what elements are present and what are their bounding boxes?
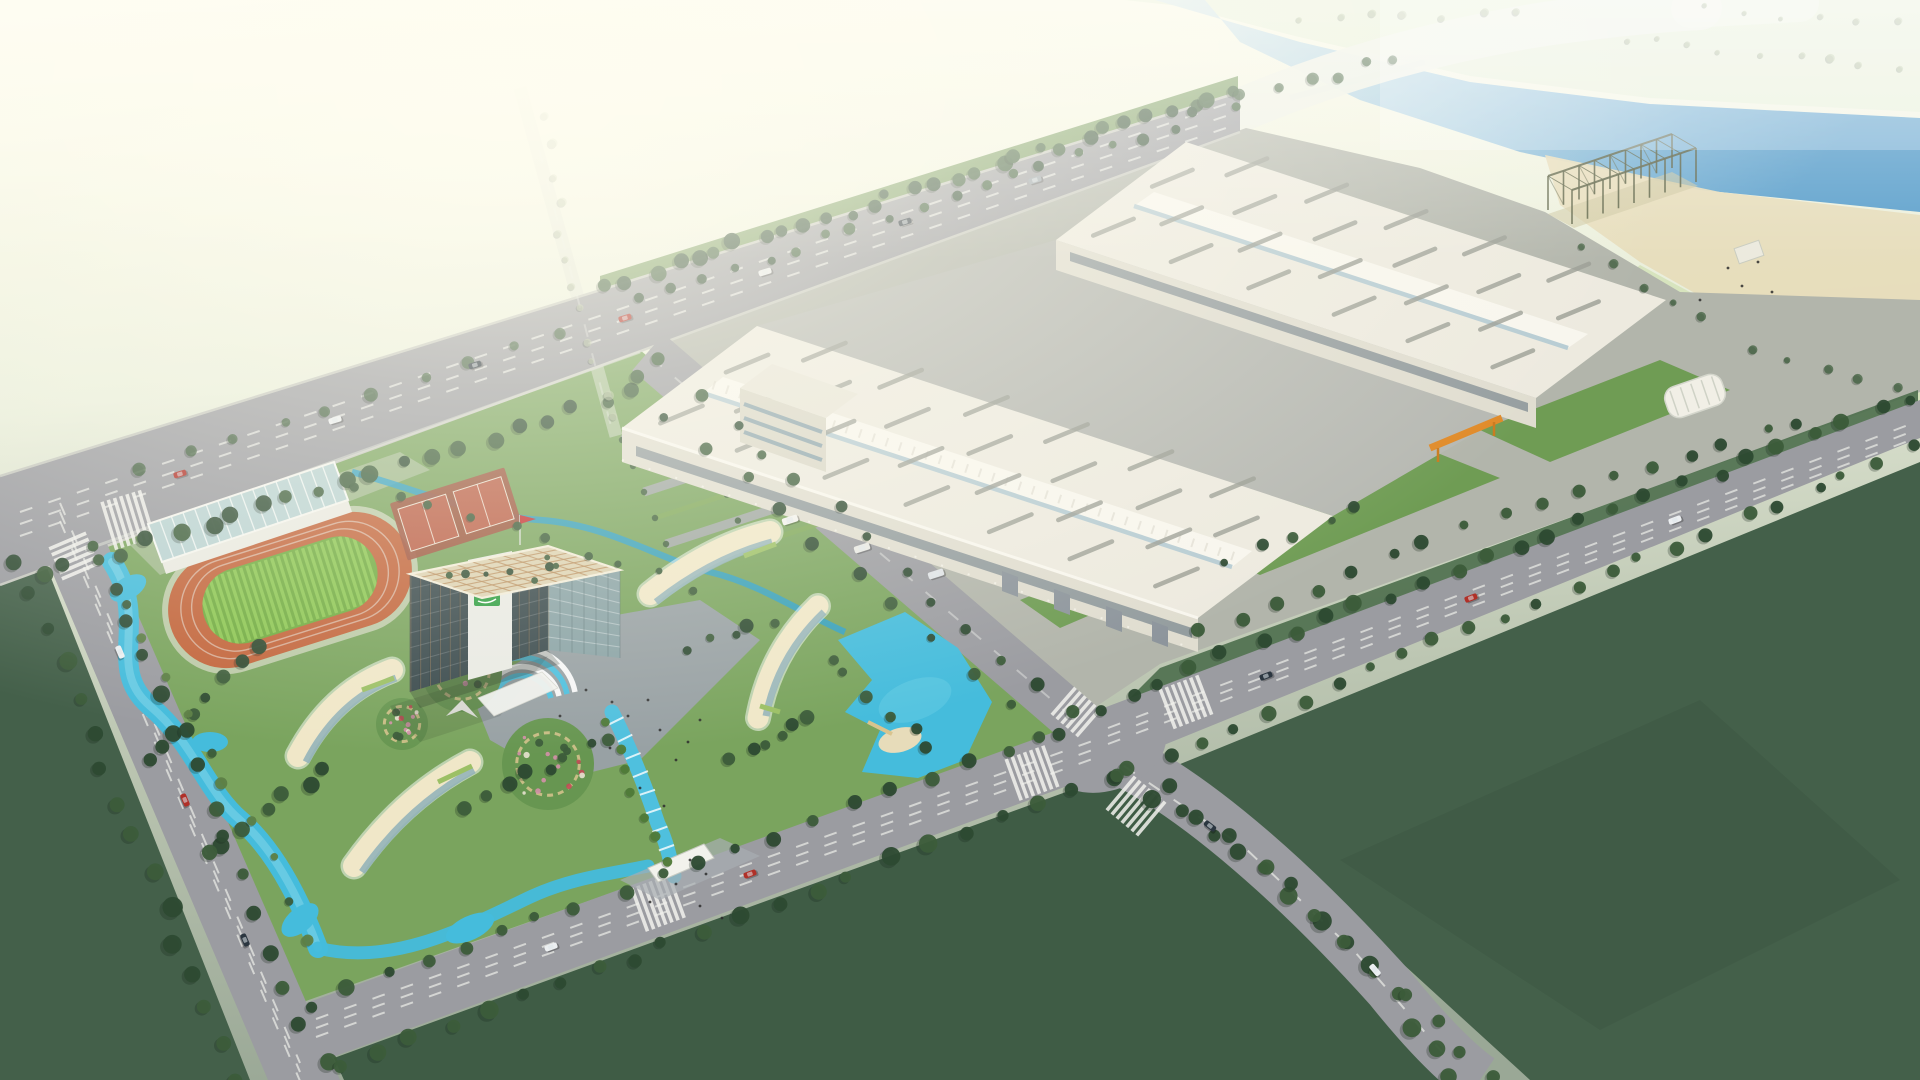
corner-haze [1380,0,1920,150]
scene-svg [0,0,1920,1080]
sun-glare [0,0,1920,1080]
aerial-rendering-canvas [0,0,1920,1080]
